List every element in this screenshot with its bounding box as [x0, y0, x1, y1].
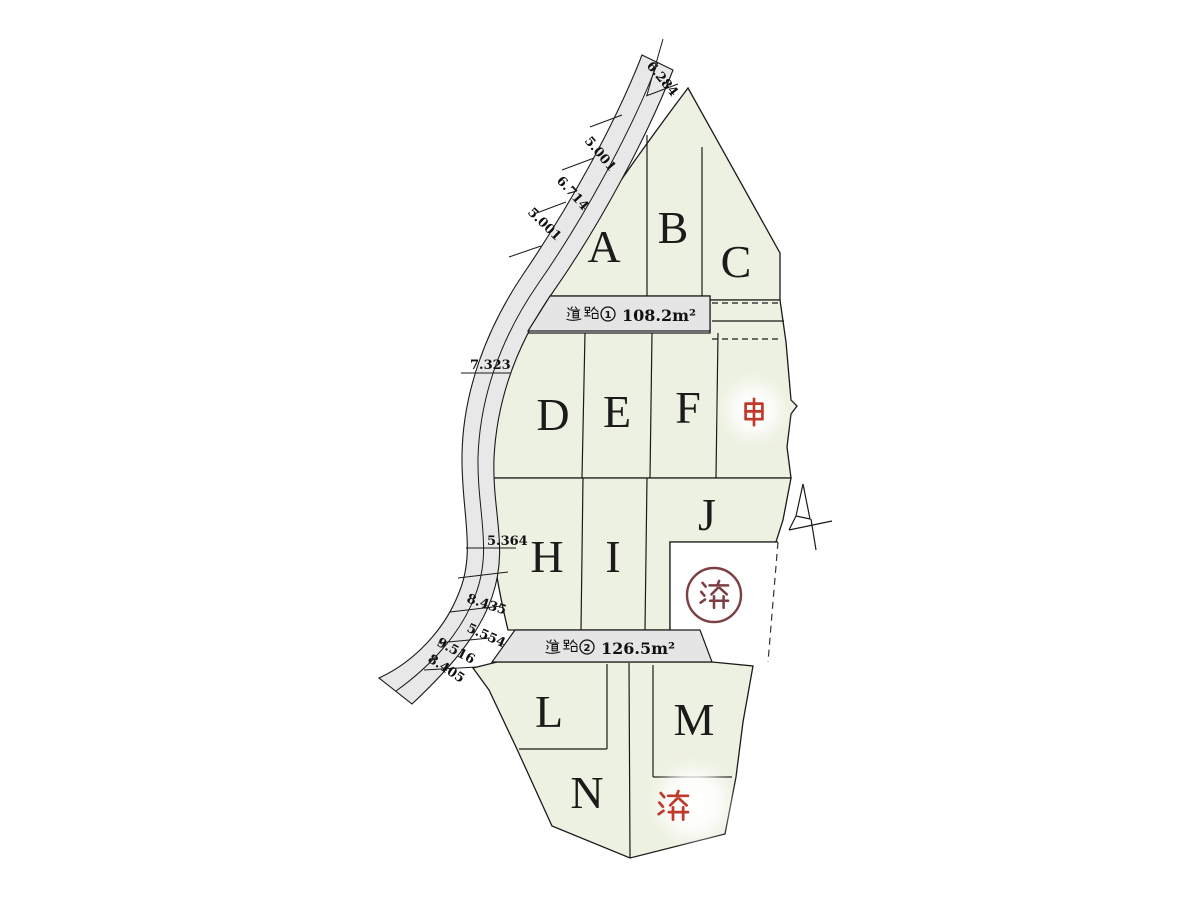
- plot-map-canvas: 1 108.2m² 2 126.5m² 6.284 5.001 6.714 5.…: [0, 0, 1200, 900]
- road2-number: 2: [584, 643, 591, 654]
- lot-label-l: L: [535, 686, 563, 737]
- parcel-blocks: [473, 88, 797, 858]
- lot-label-i: I: [605, 531, 620, 582]
- lot-label-j: J: [698, 489, 716, 540]
- lot-label-e: E: [603, 386, 631, 437]
- measurement-label: 5.364: [487, 534, 528, 549]
- plot-map-page: 1 108.2m² 2 126.5m² 6.284 5.001 6.714 5.…: [0, 0, 1200, 900]
- lot-label-m: M: [674, 694, 715, 745]
- road1-number: 1: [605, 310, 612, 321]
- lot-label-f: F: [675, 382, 701, 433]
- lot-label-d: D: [536, 389, 569, 440]
- lot-label-n: N: [570, 767, 603, 818]
- road2-area: 126.5m²: [601, 639, 675, 658]
- measurement-label: 5.554: [464, 621, 507, 651]
- measurement-label: 7.323: [470, 358, 511, 373]
- sold-glow: [659, 769, 727, 837]
- road1-area: 108.2m²: [622, 306, 696, 325]
- lot-label-h: H: [530, 531, 563, 582]
- lot-label-b: B: [658, 202, 689, 253]
- north-arrow-icon: [789, 484, 832, 550]
- lot-label-a: A: [587, 221, 620, 272]
- lot-label-c: C: [721, 236, 752, 287]
